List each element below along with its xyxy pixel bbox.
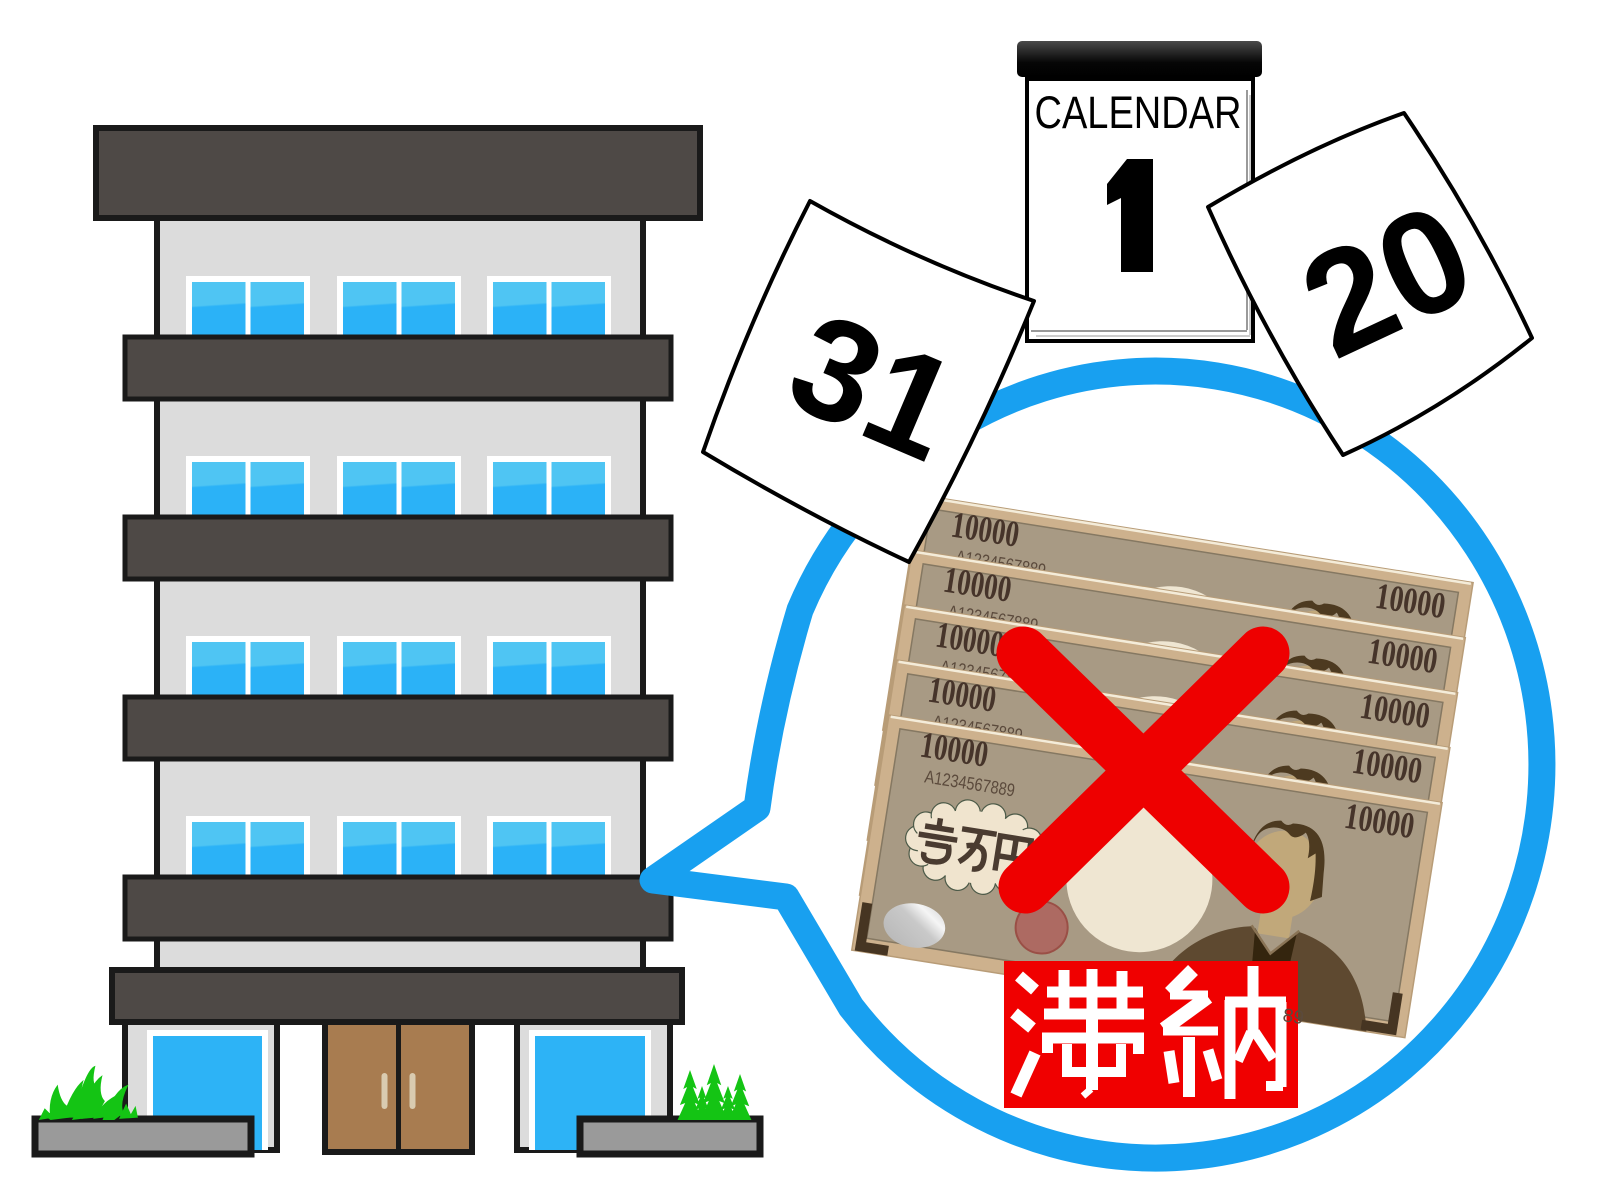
- svg-text:CALENDAR: CALENDAR: [1035, 87, 1242, 138]
- svg-text:89: 89: [1281, 1005, 1305, 1029]
